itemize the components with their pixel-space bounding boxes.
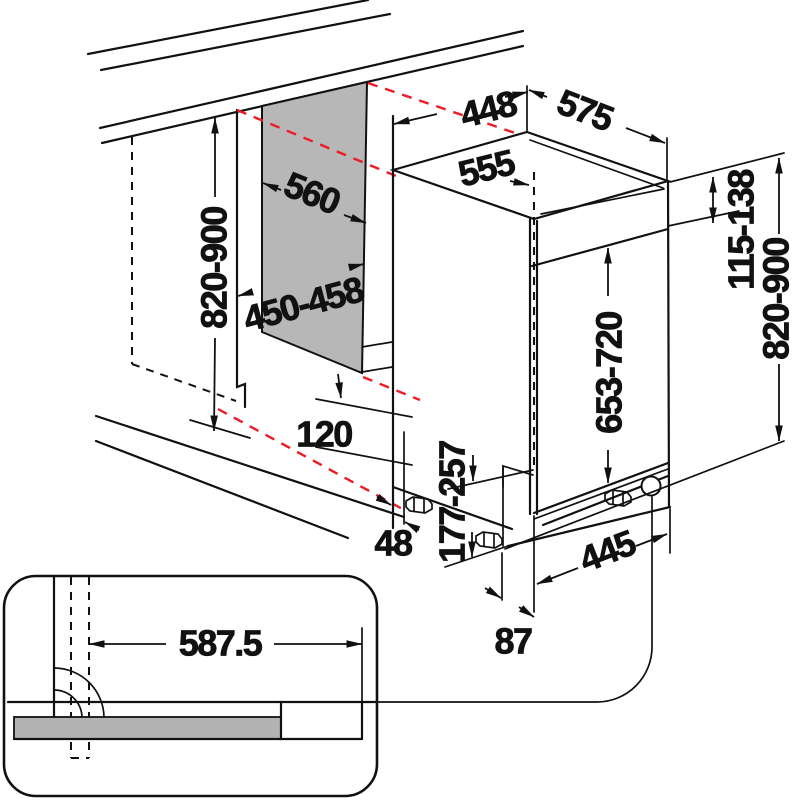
inset-border: [4, 576, 377, 796]
adjustable-foot-front-corner: [476, 532, 502, 548]
dim-label-depth-total: 575: [552, 81, 620, 140]
worktop-band-bottom-edge: [532, 229, 668, 266]
dimension-foot-setback: 87: [485, 516, 534, 662]
dim-label-side-clearance: 48: [374, 523, 412, 564]
cabinet-base-lines: [96, 399, 412, 538]
installation-diagram: 448 575 555 560 450-458 820-900: [0, 0, 800, 800]
dimension-plinth-recess: 120: [296, 374, 352, 455]
niche-plinth-rail: [362, 342, 392, 372]
door-panel-bar: [14, 717, 281, 739]
dim-label-appliance-height: 820-900: [756, 238, 797, 360]
diagram-canvas: 448 575 555 560 450-458 820-900: [0, 0, 800, 800]
dimension-door-height: 653-720: [589, 248, 630, 483]
dim-label-door-panel-width: 587.5: [179, 623, 263, 664]
wall-lines: [88, 0, 390, 70]
dim-label-appliance-width: 448: [456, 82, 520, 135]
adjustable-foot-front-left: [406, 497, 432, 513]
dim-label-niche-height: 820-900: [194, 207, 235, 329]
dim-label-plinth-height: 177-257: [432, 441, 473, 563]
dimension-niche-height: 820-900: [194, 118, 235, 431]
top-lid-inner-edge-front: [541, 189, 664, 214]
top-lid-inner-edge: [530, 140, 663, 188]
dimension-plinth-height: 177-257: [432, 441, 534, 567]
door-panel-detail-inset: 587.5: [4, 576, 377, 796]
dim-label-base-depth: 445: [574, 521, 642, 580]
niche-front-edge: [237, 110, 245, 407]
dim-label-plinth-recess: 120: [296, 414, 352, 455]
dim-label-foot-setback: 87: [494, 621, 532, 662]
dim-label-door-height: 653-720: [589, 312, 630, 434]
dimension-appliance-width: 448: [394, 82, 528, 135]
